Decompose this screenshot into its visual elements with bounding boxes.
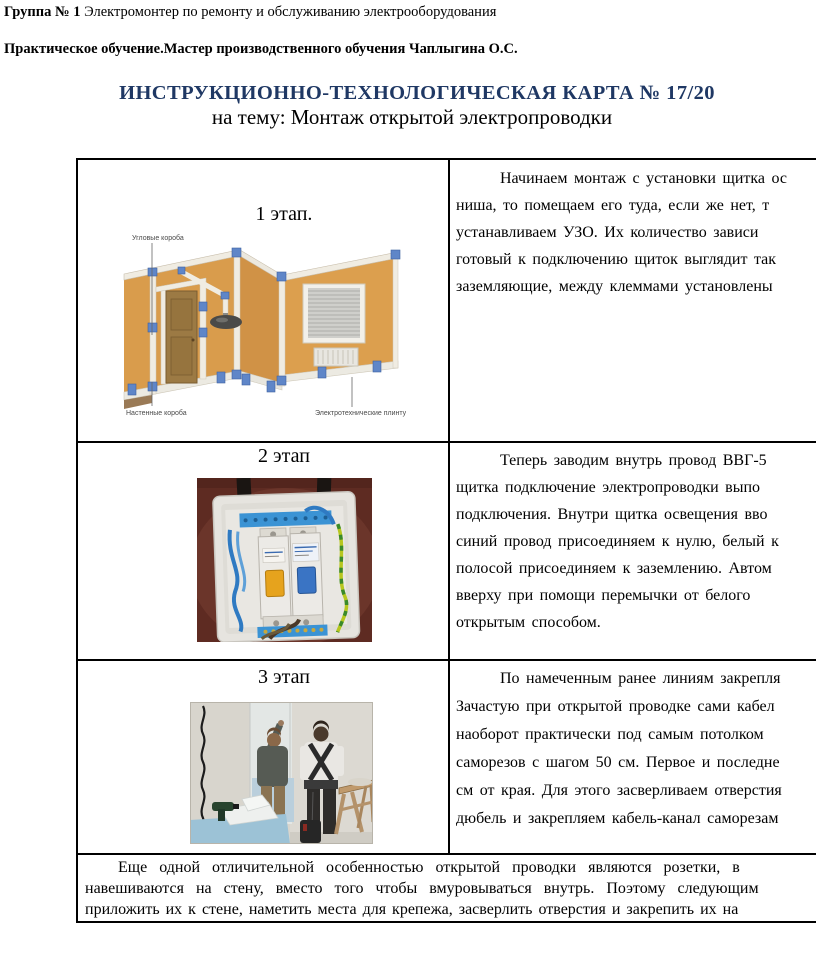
header-training-line: Практическое обучение.Мастер производств…	[4, 41, 518, 58]
paragraph-line: Еще одной отличительной особенностью отк…	[85, 857, 816, 878]
paragraph-line: вверху при помощи перемычки от белого	[456, 582, 816, 609]
stage1-text: Начинаем монтаж с установки щитка ос ниш…	[450, 160, 816, 441]
paragraph-line: устанавливаем УЗО. Их количество зависи	[456, 219, 816, 246]
document-page: Группа № 1 Электромонтер по ремонту и об…	[0, 0, 816, 964]
paragraph-line: приложить их к стене, наметить места для…	[85, 899, 816, 920]
room-open-wiring-diagram: Угловые короба Настенные короба Электрот…	[122, 230, 406, 426]
stage3-text: По намеченным ранее линиям закрепля Зача…	[450, 661, 816, 853]
paragraph-line: По намеченным ранее линиям закрепля	[456, 665, 816, 693]
paragraph-line: Зачастую при открытой проводке сами кабе…	[456, 693, 816, 721]
paragraph-line: навешиваются на стену, вместо того чтобы…	[85, 878, 816, 899]
label-corner-ducts: Угловые короба	[132, 234, 184, 242]
paragraph-line: см от края. Для этого засверливаем отвер…	[456, 777, 816, 805]
table-row: 1 этап.	[78, 160, 816, 443]
page-subtitle: на тему: Монтаж открытой электропроводки	[0, 105, 816, 130]
distribution-board-photo	[197, 478, 372, 642]
header-group-line: Группа № 1 Электромонтер по ремонту и об…	[4, 4, 496, 21]
table-row: 3 этап	[78, 661, 816, 855]
label-wall-ducts: Настенные короба	[126, 409, 187, 417]
paragraph-line: заземляющие, между клеммами установлены	[456, 273, 816, 300]
stage3-cell: 3 этап	[78, 661, 450, 853]
footer-row: Еще одной отличительной особенностью отк…	[78, 855, 816, 921]
paragraph-line: Теперь заводим внутрь провод ВВГ-5	[456, 447, 816, 474]
paragraph-line: готовый к подключению щиток выглядит так	[456, 246, 816, 273]
paragraph-line: открытым способом.	[456, 609, 816, 636]
paragraph-line: ниша, то помещаем его туда, если же нет,…	[456, 192, 816, 219]
paragraph-line: Начинаем монтаж с установки щитка ос	[456, 165, 816, 192]
stage3-label: 3 этап	[78, 661, 448, 689]
stage2-text: Теперь заводим внутрь провод ВВГ-5 щитка…	[450, 443, 816, 659]
group-profession: Электромонтер по ремонту и обслуживанию …	[80, 4, 496, 20]
paragraph-line: щитка подключение электропроводки выпо	[456, 474, 816, 501]
stage1-label: 1 этап.	[78, 160, 448, 226]
workers-marking-wall-photo	[190, 702, 373, 844]
paragraph-line: наоборот практически под самым потолком	[456, 721, 816, 749]
stage1-cell: 1 этап.	[78, 160, 450, 441]
paragraph-line: синий провод присоединяем к нулю, белый …	[456, 528, 816, 555]
paragraph-line: подключения. Внутри щитка освещения вво	[456, 501, 816, 528]
page-title: ИНСТРУКЦИОННО-ТЕХНОЛОГИЧЕСКАЯ КАРТА № 17…	[0, 82, 816, 105]
label-plinths: Электротехнические плинтусы	[315, 410, 406, 417]
paragraph-line: саморезов с шагом 50 см. Первое и послед…	[456, 749, 816, 777]
stages-table: 1 этап.	[76, 158, 816, 923]
group-number: Группа № 1	[4, 4, 80, 20]
stage2-label: 2 этап	[78, 443, 448, 468]
paragraph-line: дюбель и закрепляем кабель-канал саморез…	[456, 805, 816, 833]
paragraph-line: полосой присоединяем к заземлению. Автом	[456, 555, 816, 582]
stage2-cell: 2 этап	[78, 443, 450, 659]
table-row: 2 этап	[78, 443, 816, 661]
